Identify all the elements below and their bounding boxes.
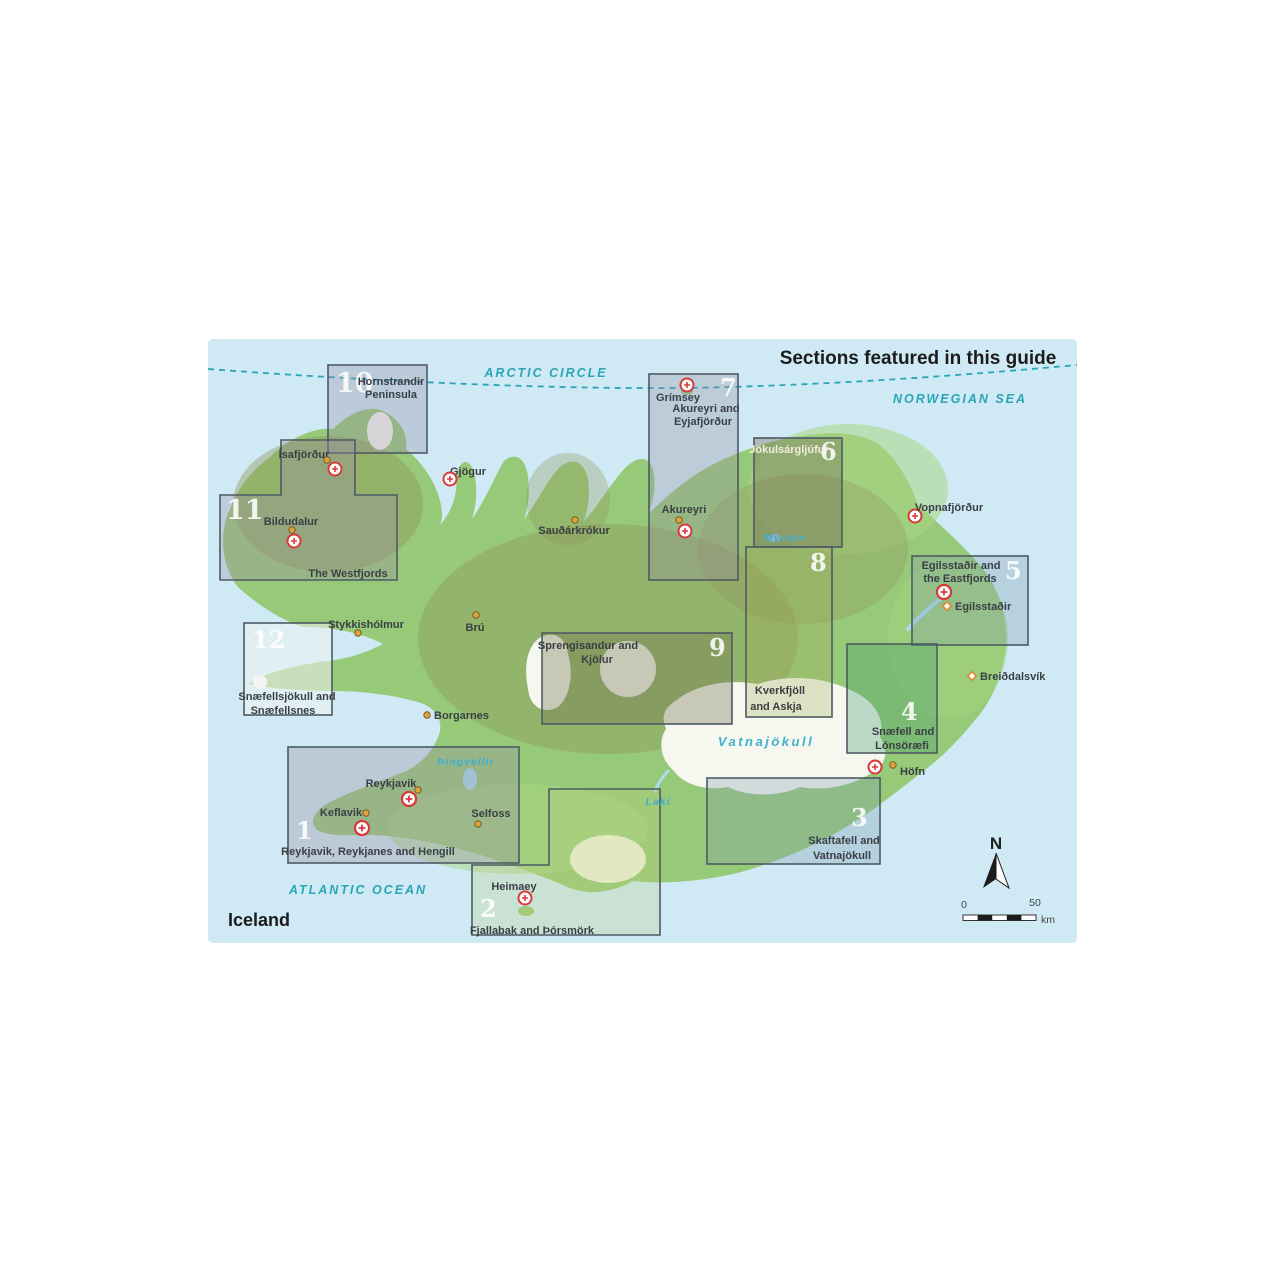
town-saudarkrokur-dot — [572, 517, 578, 523]
section-8-number: 8 — [810, 548, 827, 577]
town-isafjordur-marker-icon — [329, 463, 342, 476]
iceland-overview-map: 10 Hornstrandir Peninsula 11 The Westfjo… — [208, 339, 1077, 943]
town-reykjavik-label: Reykjavik — [366, 778, 418, 790]
section-3-label-line1: Skaftafell and — [808, 835, 880, 847]
town-egilsstadir-label: Egilsstaðir — [955, 601, 1012, 613]
town-reykjavik-dot — [415, 787, 421, 793]
section-10-label-line2: Peninsula — [365, 389, 418, 401]
myvatn-label: Mývatn — [764, 532, 806, 544]
section-11-number: 11 — [226, 495, 264, 526]
section-8-label-line1: Kverkfjöll — [755, 685, 805, 697]
town-gjogur-marker-icon — [444, 473, 457, 486]
town-hofn-marker-icon — [869, 761, 882, 774]
section-8-label-line2: and Askja — [750, 701, 802, 713]
town-bildudalur-marker-icon — [288, 535, 301, 548]
section-5-label-line2: the Eastfjords — [923, 573, 996, 585]
thingvellir-label: Þingvellir — [437, 756, 494, 768]
town-bru-label: Brú — [466, 622, 485, 634]
laki-label: Laki — [645, 796, 670, 808]
section-1-label: Reykjavik, Reykjanes and Hengill — [281, 846, 455, 858]
section-4-label-line2: Lónsöræfi — [875, 740, 929, 752]
section-2-label: Fjallabak and Þórsmörk — [470, 925, 595, 937]
arctic-circle-label: ARCTIC CIRCLE — [483, 366, 607, 380]
town-akureyri-marker-icon — [679, 525, 692, 538]
town-selfoss-label: Selfoss — [471, 808, 510, 820]
atlantic-ocean-label: ATLANTIC OCEAN — [288, 883, 427, 897]
map-title: Sections featured in this guide — [780, 348, 1057, 369]
section-7-label-line2: Eyjafjörður — [674, 416, 733, 428]
section-9-label-line1: Sprengisandur and — [538, 640, 638, 652]
town-borgarnes-dot — [424, 712, 430, 718]
town-reykjavik-marker-icon — [402, 792, 416, 806]
section-3-label-line2: Vatnajökull — [813, 850, 871, 862]
section-7-label-line1: Akureyri and — [672, 403, 739, 415]
town-keflavik-dot — [363, 810, 369, 816]
section-9-number: 9 — [709, 633, 726, 662]
scale-bar: 0 50 km — [961, 897, 1055, 926]
section-2-number: 2 — [480, 894, 497, 923]
scale-end-label: 50 — [1029, 897, 1041, 909]
town-breiddalsvik-label: Breiðdalsvík — [980, 671, 1046, 683]
page-background: 10 Hornstrandir Peninsula 11 The Westfjo… — [0, 0, 1280, 1280]
town-keflavik-marker-icon — [355, 821, 369, 835]
section-9-label-line2: Kjölur — [581, 654, 613, 666]
town-bru-dot — [473, 612, 479, 618]
town-bildudalur-label: Bildudalur — [264, 516, 319, 528]
section-4-label-line1: Snæfell and — [872, 726, 934, 738]
section-5-label-line1: Egilsstaðir and — [922, 560, 1001, 572]
town-saudarkrokur-label: Sauðárkrókur — [538, 525, 610, 537]
section-12-label-line2: Snæfellsnes — [251, 705, 316, 717]
town-selfoss-dot — [475, 821, 481, 827]
town-grimsey-label: Grímsey — [656, 392, 701, 404]
section-7-number: 7 — [720, 373, 737, 402]
town-bildudalur-dot — [289, 527, 295, 533]
compass-north-icon: N — [983, 834, 1009, 888]
town-hofn-label: Höfn — [900, 766, 925, 778]
town-stykkisholmur-dot — [355, 630, 361, 636]
town-vopnafjordur-label: Vopnafjörður — [915, 502, 984, 514]
map-canvas: 10 Hornstrandir Peninsula 11 The Westfjo… — [208, 339, 1077, 943]
town-isafjordur-dot — [324, 457, 330, 463]
scale-start-label: 0 — [961, 899, 967, 911]
town-borgarnes-label: Borgarnes — [434, 710, 489, 722]
norwegian-sea-label: NORWEGIAN SEA — [893, 392, 1027, 406]
compass-north-label: N — [990, 834, 1002, 853]
section-3-number: 3 — [851, 803, 868, 832]
vatnajokull-label: Vatnajökull — [718, 734, 814, 749]
town-hofn-dot — [890, 762, 896, 768]
section-11-label: The Westfjords — [308, 568, 387, 580]
section-1-number: 1 — [296, 816, 313, 845]
section-10-label-line1: Hornstrandir — [358, 376, 425, 388]
country-label: Iceland — [228, 910, 290, 930]
scale-unit-label: km — [1041, 914, 1055, 926]
town-heimaey-marker-icon — [519, 892, 532, 905]
town-grimsey-marker-icon — [681, 379, 694, 392]
town-stykkisholmur-label: Stykkishólmur — [328, 619, 405, 631]
town-isafjordur-label: Ísafjörður — [279, 448, 330, 461]
section-6-label: Jökulsárgljúfur — [749, 444, 829, 456]
town-heimaey-label: Heimaey — [491, 881, 537, 893]
section-12-label-line1: Snæfellsjökull and — [238, 691, 335, 703]
section-12-number: 12 — [252, 625, 285, 654]
town-akureyri-label: Akureyri — [662, 504, 707, 516]
town-akureyri-dot — [676, 517, 682, 523]
section-4-number: 4 — [901, 697, 918, 726]
section-5-marker-icon — [937, 585, 951, 599]
section-5-number: 5 — [1005, 556, 1022, 585]
town-keflavik-label: Keflavik — [320, 807, 363, 819]
